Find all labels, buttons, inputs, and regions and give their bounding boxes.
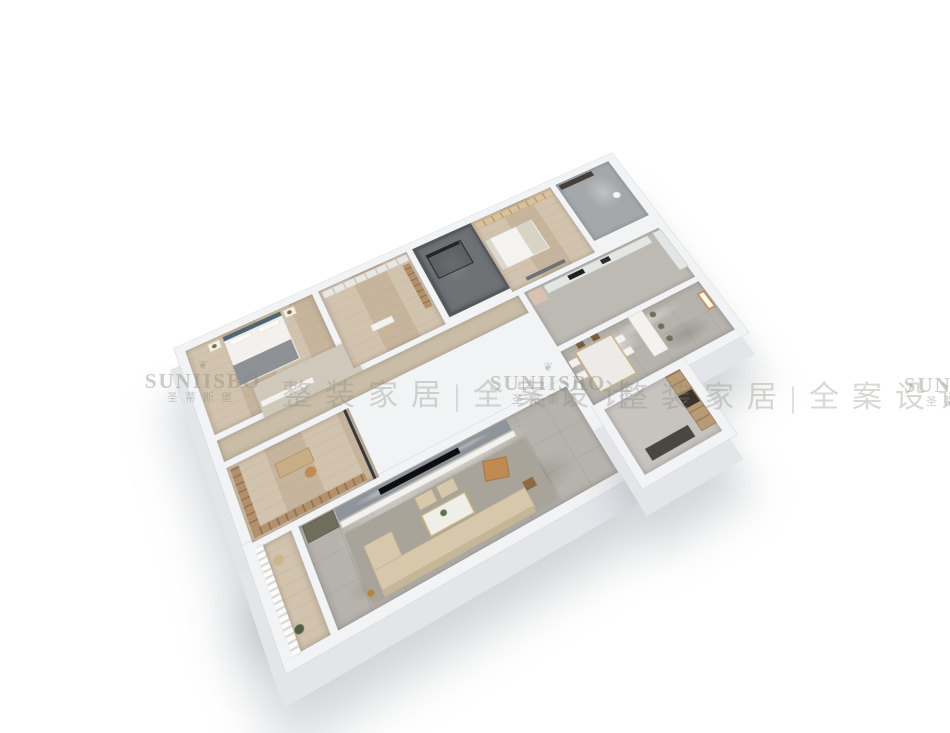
3d-scene — [0, 0, 950, 733]
table-lamp — [287, 309, 293, 314]
apartment-plan — [152, 138, 812, 702]
floorplan-render-image: ❦ SUNIISBO 圣蒂斯堡 整装家居|全案设计 ❦ SUNIISBO 圣蒂斯… — [0, 0, 950, 733]
table-lamp — [211, 343, 217, 349]
leather-armchair — [482, 456, 509, 481]
